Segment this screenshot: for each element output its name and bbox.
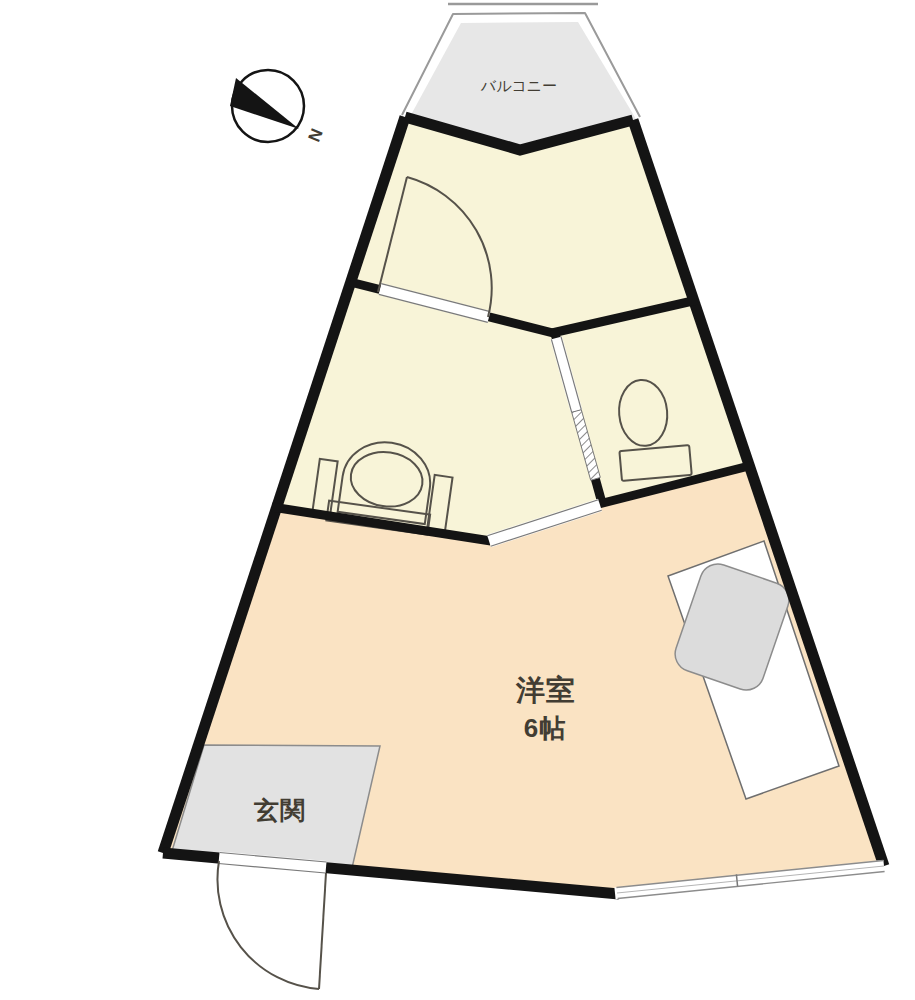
- floor-plan-svg: バルコニー: [0, 0, 915, 1000]
- western-room-label: 洋室: [515, 674, 576, 706]
- entrance-label: 玄関: [253, 796, 306, 824]
- compass-n-label: N: [304, 126, 326, 145]
- entrance-door: [217, 861, 326, 989]
- floor-plan-canvas: バルコニー: [0, 0, 915, 1000]
- entrance-door-arc: [217, 861, 319, 989]
- western-room-size-label: 6帖: [524, 713, 566, 743]
- balcony-label: バルコニー: [480, 77, 557, 94]
- compass-north-icon: N: [230, 70, 326, 144]
- entrance-door-leaf: [319, 873, 326, 989]
